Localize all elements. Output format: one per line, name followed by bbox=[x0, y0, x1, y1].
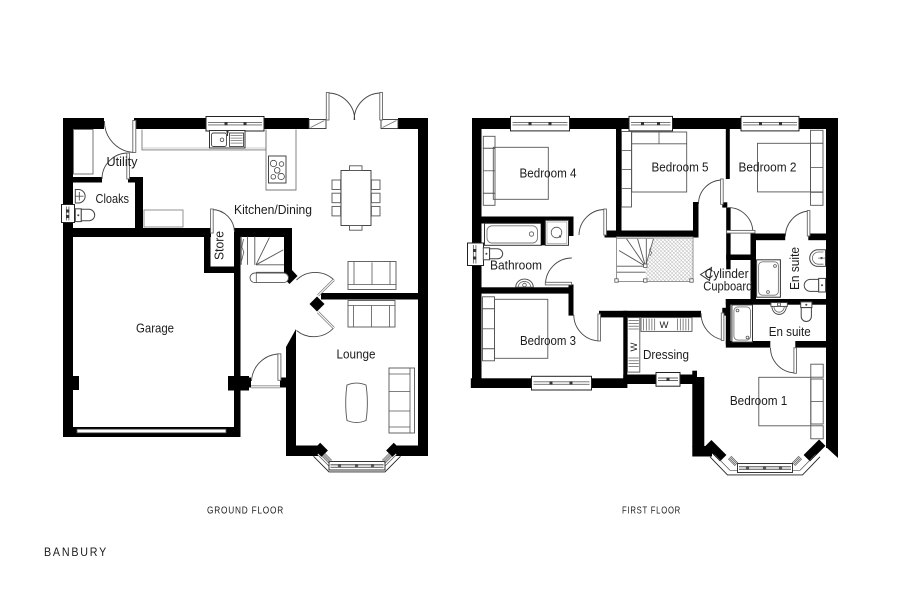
svg-text:Bedroom 3: Bedroom 3 bbox=[520, 333, 576, 348]
svg-text:Bathroom: Bathroom bbox=[490, 258, 542, 273]
svg-text:En suite: En suite bbox=[787, 247, 802, 290]
svg-text:Bedroom 2: Bedroom 2 bbox=[739, 160, 797, 175]
svg-text:Cupboard: Cupboard bbox=[703, 279, 752, 294]
svg-text:En suite: En suite bbox=[769, 324, 811, 339]
svg-text:Bedroom 5: Bedroom 5 bbox=[652, 160, 709, 175]
svg-text:Bedroom 1: Bedroom 1 bbox=[730, 393, 788, 408]
svg-text:W: W bbox=[629, 342, 640, 351]
svg-text:Dressing: Dressing bbox=[643, 347, 689, 362]
svg-text:Lounge: Lounge bbox=[337, 347, 376, 362]
svg-text:Kitchen/Dining: Kitchen/Dining bbox=[234, 202, 312, 217]
svg-text:GROUND FLOOR: GROUND FLOOR bbox=[207, 505, 284, 517]
svg-text:Utility: Utility bbox=[107, 154, 139, 169]
svg-text:Bedroom 4: Bedroom 4 bbox=[520, 166, 577, 181]
svg-text:FIRST FLOOR: FIRST FLOOR bbox=[622, 505, 681, 517]
svg-text:Garage: Garage bbox=[136, 321, 174, 336]
svg-text:BANBURY: BANBURY bbox=[44, 545, 108, 559]
svg-text:W: W bbox=[660, 320, 669, 331]
svg-text:Cloaks: Cloaks bbox=[96, 191, 130, 206]
svg-text:Store: Store bbox=[212, 231, 227, 260]
